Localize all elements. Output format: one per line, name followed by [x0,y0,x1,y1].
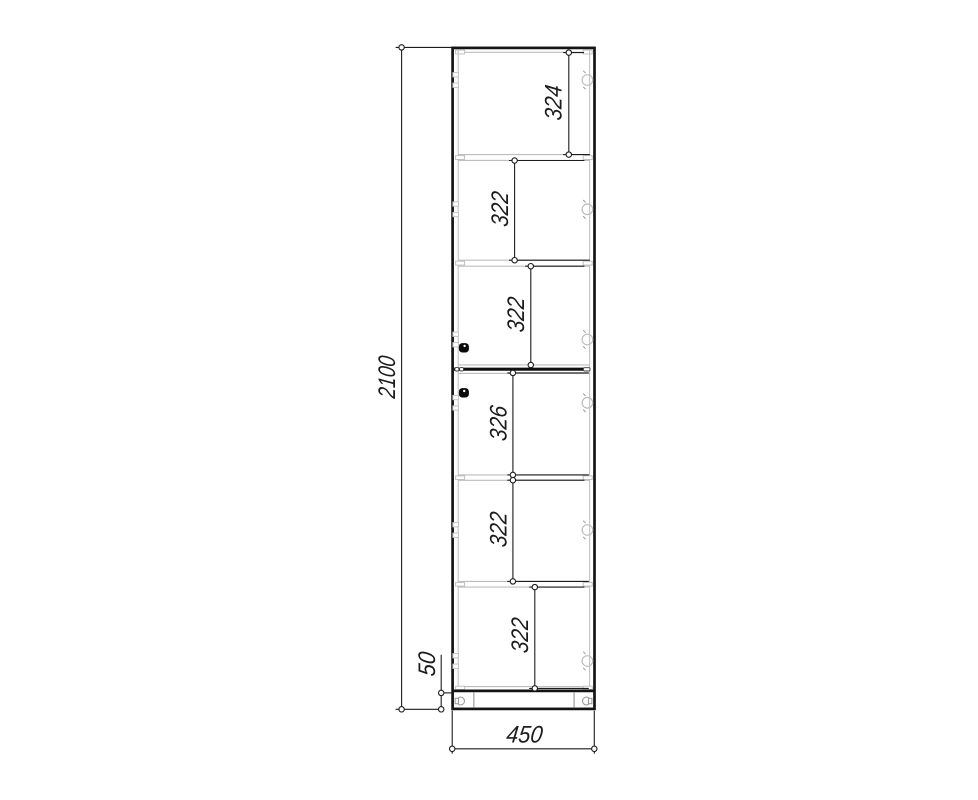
svg-text:2100: 2100 [374,354,401,401]
svg-text:324: 324 [541,83,568,121]
svg-text:322: 322 [487,189,514,228]
svg-text:50: 50 [414,650,441,678]
svg-text:322: 322 [503,295,530,334]
svg-text:326: 326 [486,404,513,443]
svg-text:450: 450 [505,722,545,749]
svg-text:322: 322 [507,616,534,655]
svg-text:322: 322 [486,510,513,549]
